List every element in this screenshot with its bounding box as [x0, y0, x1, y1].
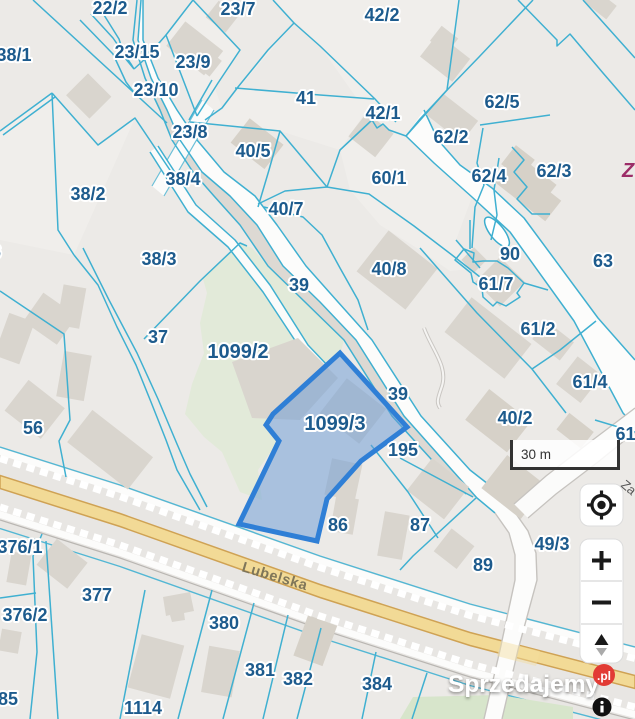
svg-text:89: 89: [473, 555, 493, 575]
svg-text:62/2: 62/2: [433, 127, 468, 147]
svg-text:40/8: 40/8: [371, 259, 406, 279]
svg-text:38/4: 38/4: [165, 169, 200, 189]
svg-text:376/2: 376/2: [2, 605, 47, 625]
svg-text:38/2: 38/2: [70, 184, 105, 204]
svg-text:382: 382: [283, 669, 313, 689]
svg-text:23/15: 23/15: [114, 42, 159, 62]
svg-text:30 m: 30 m: [521, 447, 551, 462]
svg-text:39: 39: [388, 384, 408, 404]
svg-text:23/10: 23/10: [133, 80, 178, 100]
svg-text:23/8: 23/8: [172, 122, 207, 142]
svg-text:6: 6: [0, 242, 1, 262]
svg-text:60/1: 60/1: [371, 168, 406, 188]
svg-text:56: 56: [23, 418, 43, 438]
svg-text:61/7: 61/7: [478, 274, 513, 294]
svg-text:377: 377: [82, 585, 112, 605]
svg-text:63: 63: [593, 251, 613, 271]
svg-text:41: 41: [296, 88, 316, 108]
svg-text:23/9: 23/9: [175, 52, 210, 72]
svg-text:62/4: 62/4: [471, 166, 506, 186]
svg-text:381: 381: [245, 660, 275, 680]
svg-text:87: 87: [410, 515, 430, 535]
svg-text:42/1: 42/1: [365, 103, 400, 123]
svg-text:62/5: 62/5: [484, 92, 519, 112]
svg-text:39: 39: [289, 275, 309, 295]
svg-text:40/5: 40/5: [235, 141, 270, 161]
svg-text:49/3: 49/3: [534, 534, 569, 554]
svg-text:.pl: .pl: [597, 669, 611, 683]
svg-text:384: 384: [362, 674, 392, 694]
svg-text:42/2: 42/2: [364, 5, 399, 25]
svg-text:40/2: 40/2: [497, 408, 532, 428]
svg-text:195: 195: [388, 440, 418, 460]
svg-text:62/3: 62/3: [536, 161, 571, 181]
svg-text:37: 37: [148, 327, 168, 347]
svg-text:376/1: 376/1: [0, 537, 43, 557]
svg-text:22/2: 22/2: [92, 0, 127, 18]
svg-text:380: 380: [209, 613, 239, 633]
svg-text:38/3: 38/3: [141, 249, 176, 269]
svg-text:90: 90: [500, 244, 520, 264]
svg-text:Z: Z: [621, 160, 635, 182]
svg-text:61/2: 61/2: [520, 319, 555, 339]
svg-text:40/7: 40/7: [268, 199, 303, 219]
svg-text:Sprzedajemy: Sprzedajemy: [448, 671, 600, 698]
svg-text:85: 85: [0, 689, 18, 709]
svg-text:61/4: 61/4: [572, 372, 607, 392]
svg-text:86: 86: [328, 515, 348, 535]
svg-text:1099/3: 1099/3: [304, 413, 365, 435]
svg-text:1114: 1114: [124, 698, 162, 718]
svg-text:23/7: 23/7: [220, 0, 255, 19]
svg-text:38/1: 38/1: [0, 45, 32, 65]
svg-text:1099/2: 1099/2: [207, 341, 268, 363]
